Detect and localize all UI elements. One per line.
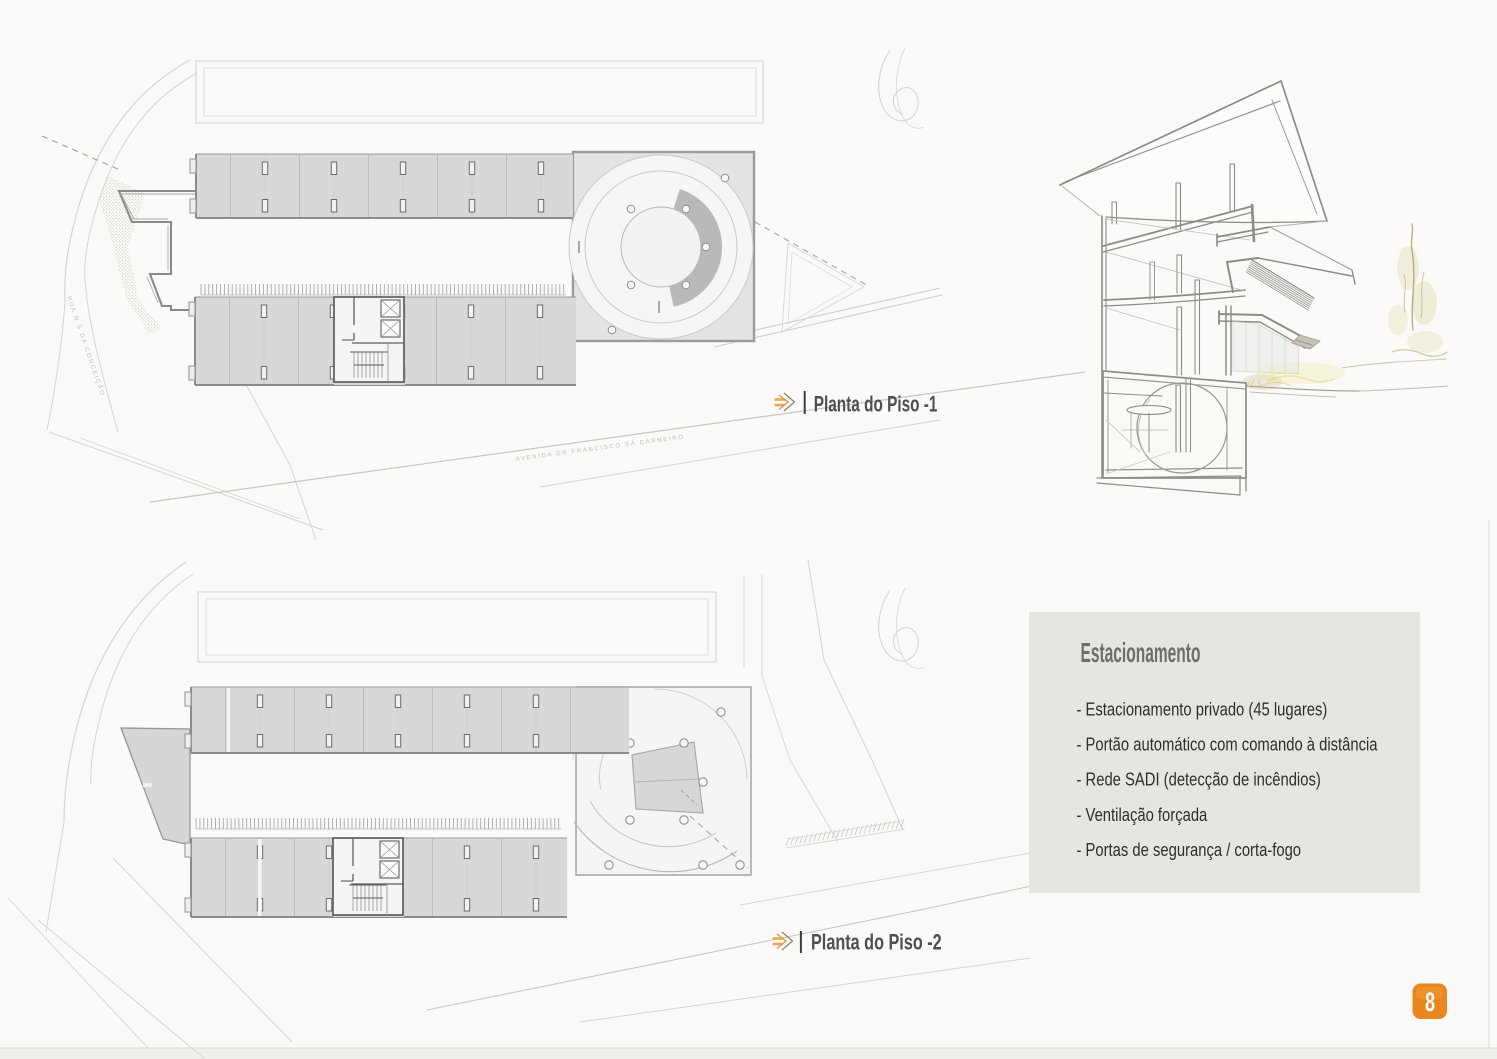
svg-text:- Estacionamento privado (45 l: - Estacionamento privado (45 lugares) xyxy=(1077,699,1328,720)
svg-text:- Rede SADI (detecção de incên: - Rede SADI (detecção de incêndios) xyxy=(1077,769,1321,790)
svg-text:- Portas de segurança / corta-: - Portas de segurança / corta-fogo xyxy=(1077,839,1302,860)
svg-text:- Ventilação forçada: - Ventilação forçada xyxy=(1077,804,1208,825)
svg-text:Planta do Piso -2: Planta do Piso -2 xyxy=(811,930,942,955)
svg-text:- Portão automático com comand: - Portão automático com comando à distân… xyxy=(1077,734,1379,755)
svg-text:Estacionamento: Estacionamento xyxy=(1081,637,1201,668)
svg-text:Planta do Piso -1: Planta do Piso -1 xyxy=(814,393,938,418)
svg-text:8: 8 xyxy=(1425,986,1435,1017)
